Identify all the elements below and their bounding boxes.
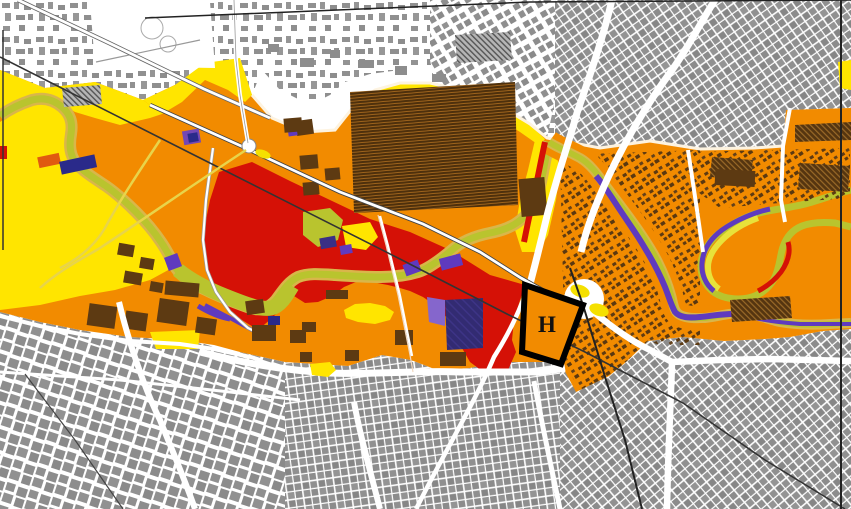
svg-text:H: H <box>538 312 556 337</box>
